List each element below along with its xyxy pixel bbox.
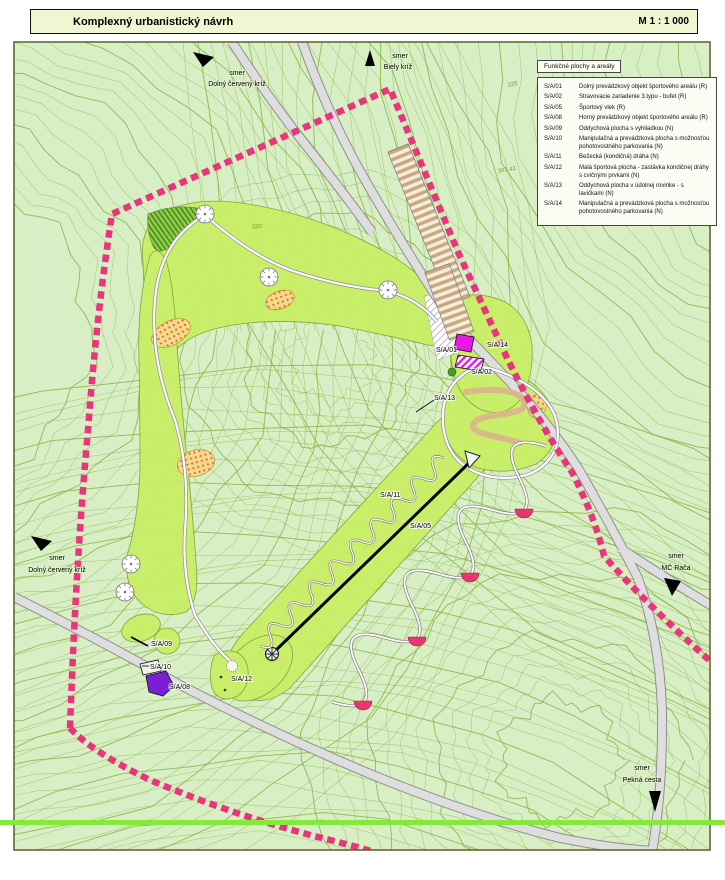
legend-item: S/A/09Oddychová plocha s vyhliadkou (N) <box>544 126 712 134</box>
legend-item: S/A/12Malá športová plocha - zastávka ko… <box>544 165 712 181</box>
title-bar: Komplexný urbanistický návrh M 1 : 1 000 <box>30 9 698 34</box>
label-sa08: S/A/08 <box>169 684 190 691</box>
legend-header: Funkčné plochy a areály <box>537 60 621 73</box>
direction-text: smer <box>49 555 65 562</box>
direction-text: smer <box>392 53 408 60</box>
label-sa11: S/A/11 <box>380 492 401 499</box>
label-sa12: S/A/12 <box>231 676 252 683</box>
direction-text: Dolný červený kríž <box>28 567 86 574</box>
sa12-equipment <box>224 689 227 692</box>
label-sa13: S/A/13 <box>434 395 455 402</box>
direction-text: Biely kríž <box>384 64 413 71</box>
direction-text: smer <box>634 765 650 772</box>
page: Komplexný urbanistický návrh M 1 : 1 000 <box>0 0 725 880</box>
legend-title: Funkčné plochy a areály <box>544 63 614 70</box>
legend-item: S/A/01Dolný prevádzkový objekt športovéh… <box>544 84 712 92</box>
legend-item: S/A/10Manipulačná a prevádzková plocha s… <box>544 136 712 152</box>
legend-item: S/A/08Horný prevádzkový objekt športovéh… <box>544 115 712 123</box>
direction-text: Dolný červený kríž <box>208 81 266 88</box>
tree-icon <box>196 205 214 223</box>
highlight-line <box>0 820 725 825</box>
sa12-equipment <box>220 676 223 679</box>
lift-base-spokes <box>266 648 279 661</box>
label-sa14: S/A/14 <box>487 342 508 349</box>
page-title: Komplexný urbanistický návrh <box>73 16 233 28</box>
legend-item: S/A/05Športový vlek (R) <box>544 105 712 113</box>
legend-item: S/A/13Oddychová plocha v údolnej rovinke… <box>544 183 712 199</box>
tree-icon <box>116 583 134 601</box>
legend-body: S/A/01Dolný prevádzkový objekt športovéh… <box>537 77 717 226</box>
legend-item: S/A/14Manipulačná a prevádzková plocha s… <box>544 201 712 217</box>
label-sa09: S/A/09 <box>151 641 172 648</box>
direction-text: MČ Rača <box>661 563 690 572</box>
label-sa10: S/A/10 <box>150 664 171 671</box>
direction-text: smer <box>229 70 245 77</box>
map-scale: M 1 : 1 000 <box>638 16 689 27</box>
label-sa01: S/A/01 <box>436 347 457 354</box>
legend: Funkčné plochy a areály S/A/01Dolný prev… <box>537 55 717 226</box>
direction-text: Pekná cesta <box>623 777 662 784</box>
label-sa05: S/A/05 <box>410 523 431 530</box>
small-tree <box>448 368 456 376</box>
tree-icon <box>379 281 397 299</box>
label-sa02: S/A/02 <box>471 369 492 376</box>
legend-item: S/A/02Stravovacie zariadenie 3.typu - bu… <box>544 94 712 102</box>
tree-icon <box>260 268 278 286</box>
sa12-circle <box>227 661 238 672</box>
legend-item: S/A/11Bežecká (kondičná) dráha (N) <box>544 154 712 162</box>
direction-text: smer <box>668 553 684 560</box>
tree-icon <box>122 555 140 573</box>
